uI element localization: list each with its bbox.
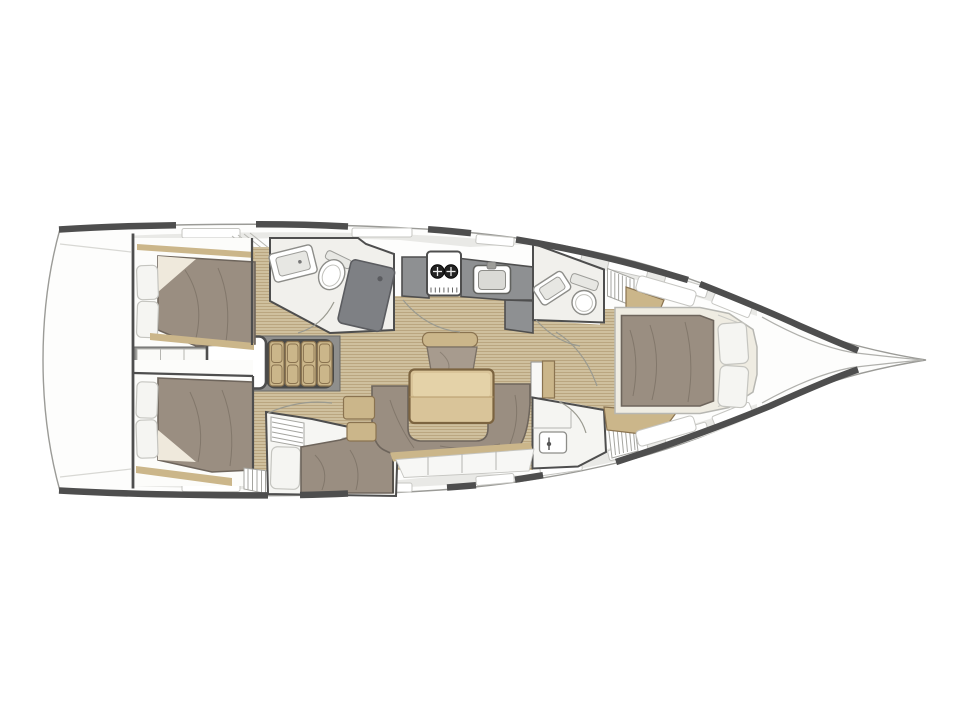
pillow [270, 447, 300, 490]
dining-table [410, 370, 494, 424]
aft-cabin-port [134, 238, 255, 350]
companionway-stairs [266, 339, 334, 389]
galley-sink [474, 262, 511, 294]
pillow [136, 420, 158, 459]
armchair [423, 333, 478, 374]
counter-leg [505, 300, 533, 333]
drainer-ticks [431, 288, 457, 293]
sink [540, 432, 567, 453]
pillow [136, 301, 158, 338]
floor-grate [244, 468, 268, 494]
aft-cabin-starboard [134, 360, 268, 494]
pillow [718, 322, 749, 365]
stove-two-burners [427, 252, 461, 296]
counter-left [402, 257, 429, 298]
yacht-floorplan [0, 0, 960, 720]
hanging-locker [531, 361, 555, 398]
side-step-boxes [344, 397, 377, 442]
pillow [136, 382, 158, 419]
pillow [718, 365, 749, 408]
yacht-floorplan-canvas [0, 0, 960, 720]
pillow [136, 265, 158, 300]
